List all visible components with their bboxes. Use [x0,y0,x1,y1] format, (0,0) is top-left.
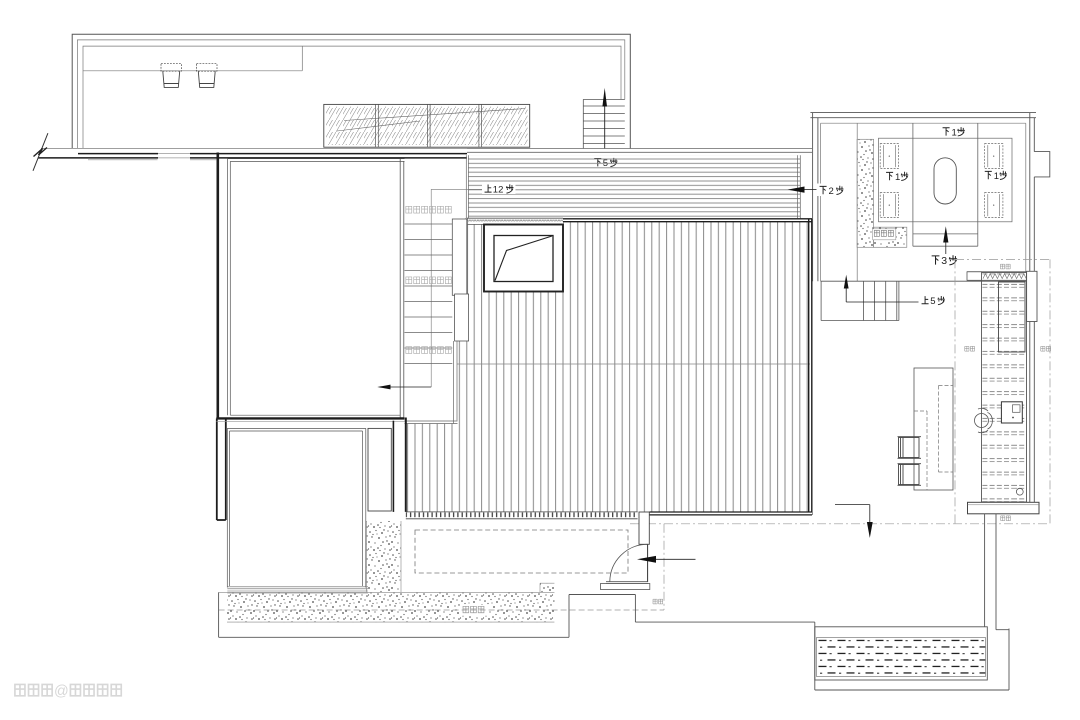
svg-text:1: 1 [952,127,957,138]
svg-text:2: 2 [829,186,834,197]
svg-text:12: 12 [493,185,504,196]
svg-text:1: 1 [895,172,900,183]
svg-text:1: 1 [994,171,999,182]
svg-text:5: 5 [930,296,935,307]
svg-text:3: 3 [941,255,947,267]
svg-text:@: @ [54,684,69,700]
